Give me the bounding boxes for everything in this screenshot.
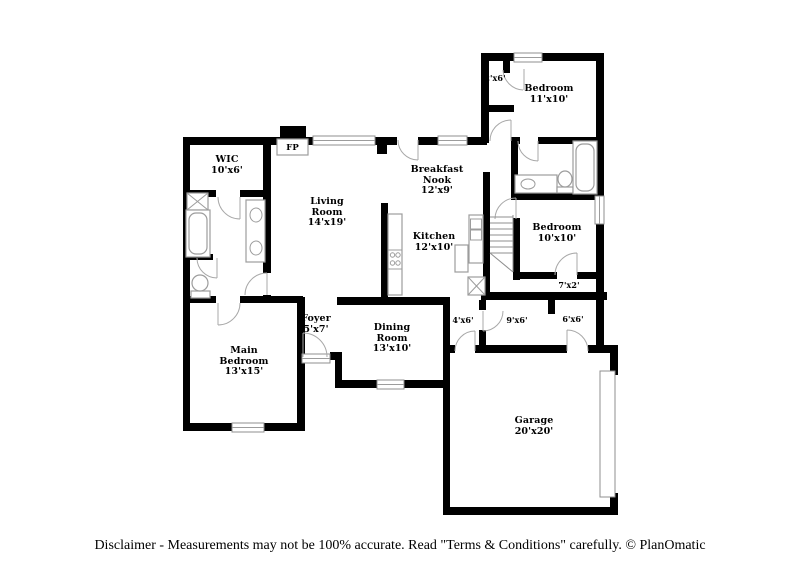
room-label-bedroom-top: Bedroom 11'x10' [509,84,589,105]
toilet-tank [557,187,573,193]
floor-plan-page: WIC 10'x6' FP Living Room 14'x19' Breakf… [0,0,800,582]
window [302,354,330,363]
room-label-breakfast-nook: Breakfast Nook 12'x9' [406,165,468,197]
closet-7x2-door [555,253,577,275]
garage-utility-door [455,331,475,351]
bathroom2-door [518,141,538,161]
disclaimer-text: Disclaimer - Measurements may not be 100… [0,538,800,554]
kitchen-fixtures [388,214,485,295]
window [377,380,404,389]
room-label-kitchen: Kitchen 12'x10' [394,232,474,253]
room-label-closet-7x2: 7'x2' [558,281,579,290]
toilet [558,171,572,187]
window [595,196,604,224]
window [514,53,542,62]
room-label-dining-room: Dining Room 13'x10' [369,323,415,355]
room-label-living-room: Living Room 14'x19' [304,197,350,229]
front-door [303,333,327,357]
nook-exterior-door [398,140,418,160]
utility-4x6-door [483,311,503,331]
fireplace-label: FP [286,143,298,153]
room-label-utility-4x6: 4'x6' [452,316,473,325]
bathroom2-fixtures [515,141,597,194]
room-label-hall-9x6: 9'x6' [506,316,527,325]
toilet-tank [191,291,210,298]
room-label-utility-6x6: 6'x6' [562,315,583,324]
room-label-main-bedroom: Main Bedroom 13'x15' [217,346,271,378]
window [313,136,375,145]
toilet [192,275,208,291]
room-label-garage: Garage 20'x20' [494,416,574,437]
garage-storage-door [567,330,588,351]
floor-plan-drawing [0,0,800,582]
hall-door [245,273,267,295]
room-label-wic: WIC 10'x6' [202,155,252,176]
window [232,423,264,432]
room-label-bedroom-right: Bedroom 10'x10' [517,223,597,244]
stairs [490,215,513,272]
bedroom-top-door [490,120,511,141]
room-label-closet-2x6: 2'x6' [484,74,505,83]
window [438,136,467,145]
room-label-foyer: Foyer 5'x7' [294,314,338,335]
bathroom1-fixtures [186,193,265,298]
main-bedroom-door [218,303,240,325]
garage-door [600,371,615,497]
vanity-counter [246,200,265,262]
chimney [280,126,306,138]
wic-door [218,197,240,219]
